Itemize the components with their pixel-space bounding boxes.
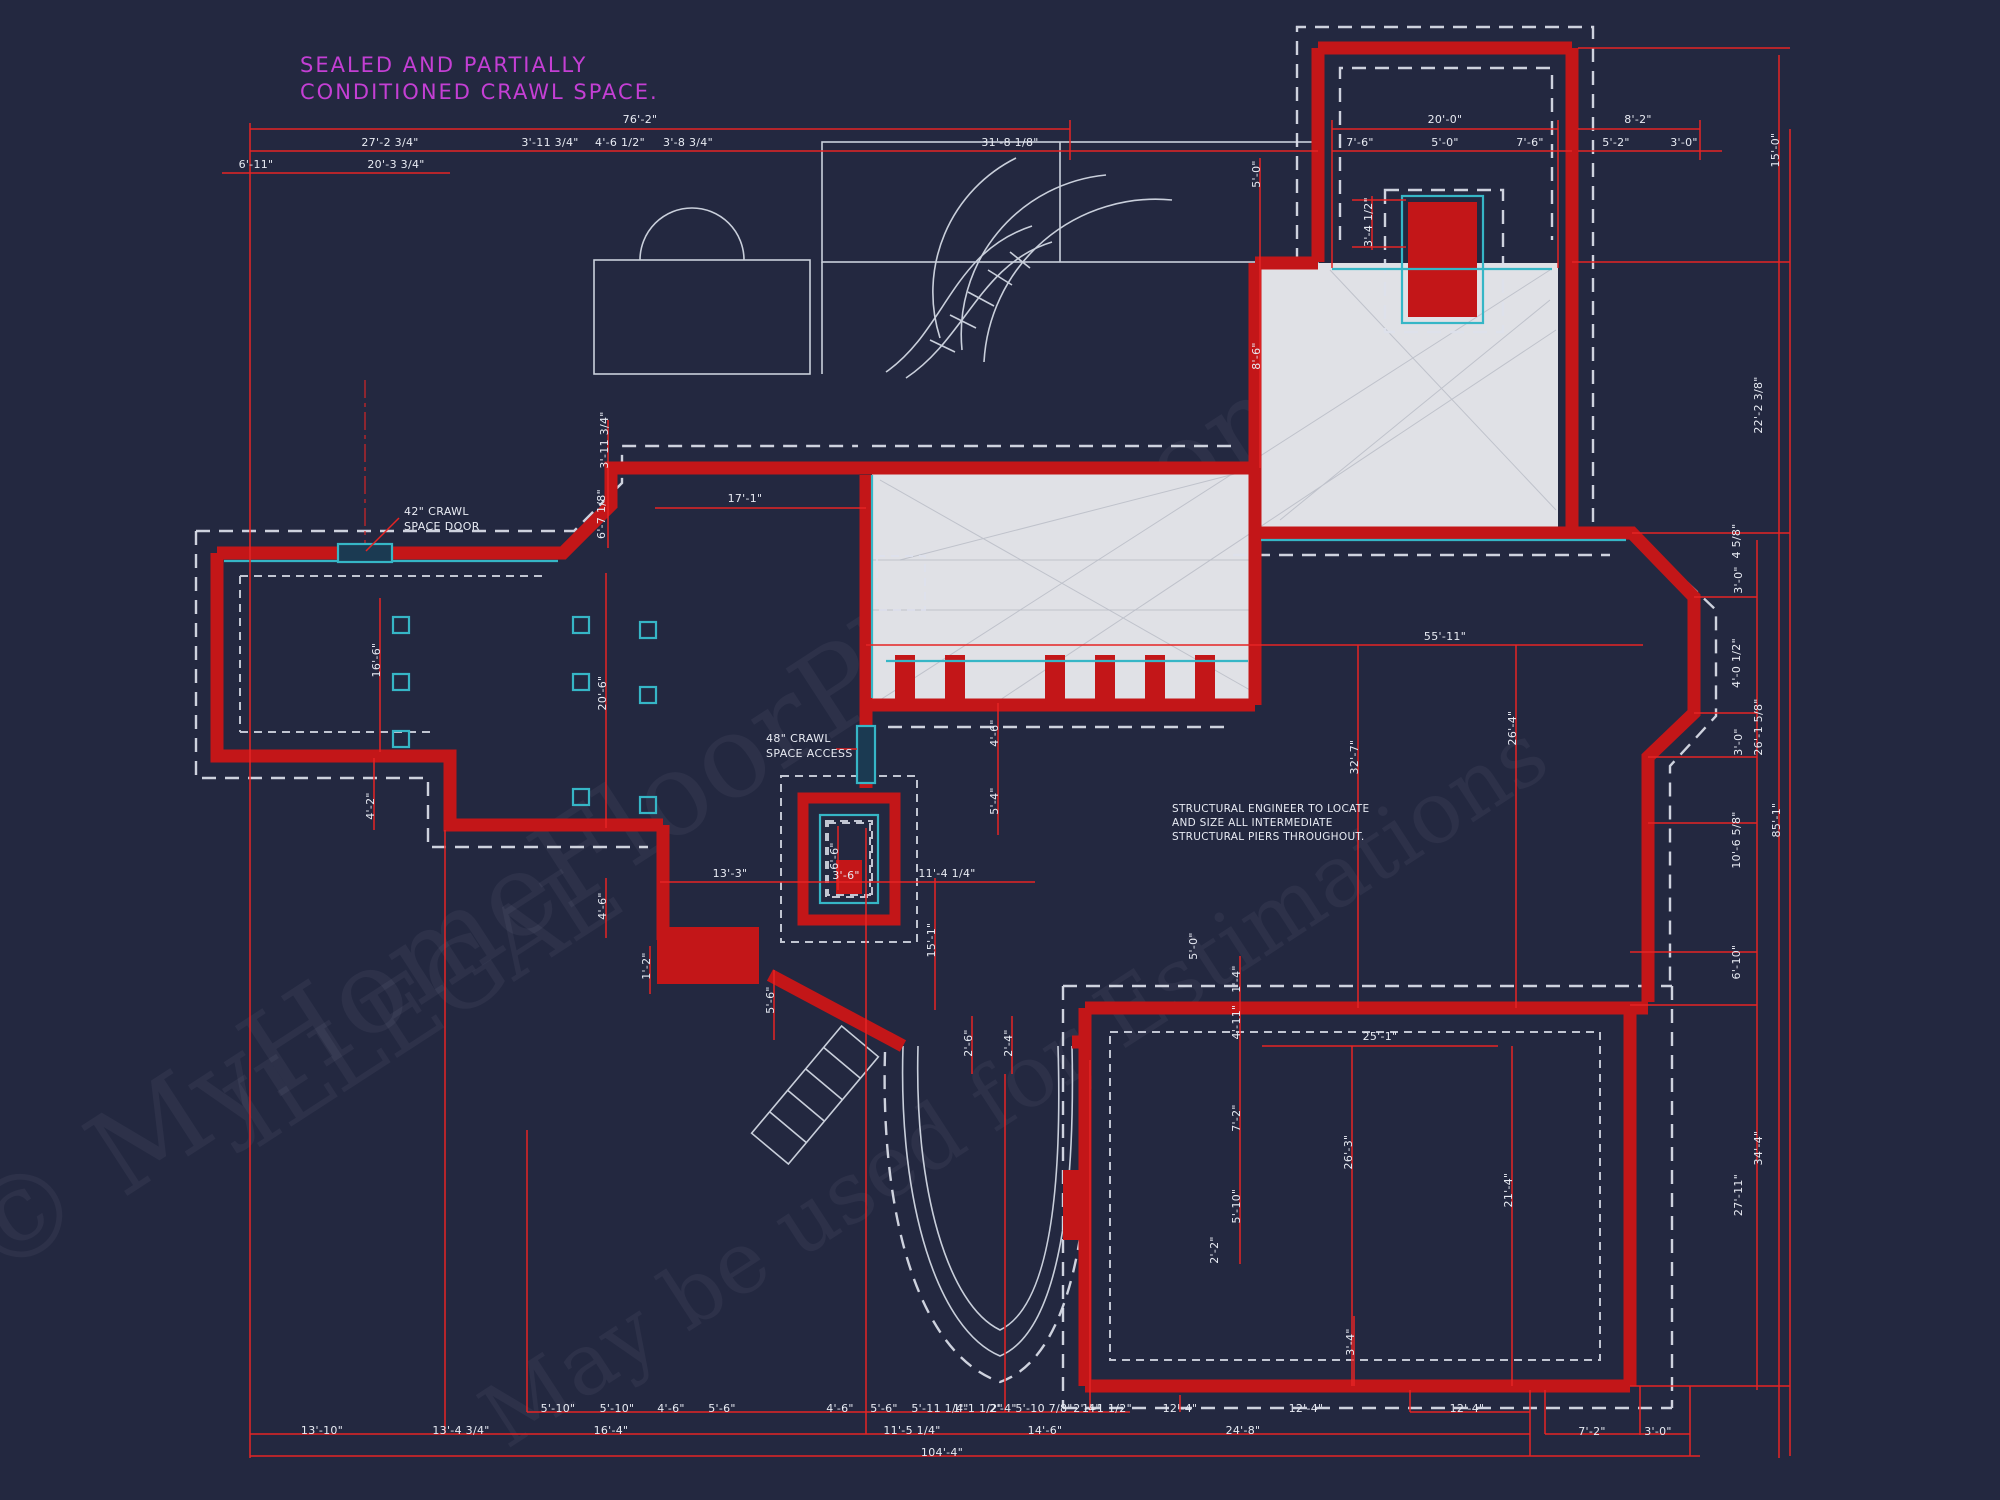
dimension-label: 11'-4 1/4" <box>918 867 975 880</box>
dimension-label: 55'-11" <box>1424 630 1466 643</box>
dimension-label: 26'-3" <box>1342 1135 1355 1170</box>
dimension-label: 22'-2 3/8" <box>1752 376 1765 433</box>
dimension-label: 2'-6" <box>962 1029 975 1057</box>
dimension-label: 4'-0 1/2" <box>1730 638 1743 688</box>
dimension-label: 5'-0" <box>1250 160 1263 188</box>
dimension-label: 4'-6 1/2" <box>595 136 645 149</box>
dimension-label: 12'-4" <box>1450 1402 1485 1415</box>
dimension-label: 3'-0" <box>1670 136 1698 149</box>
dimension-label: 76'-2" <box>623 113 658 126</box>
dimension-label: 17'-1" <box>728 492 763 505</box>
dimension-label: 3'-0" <box>1644 1425 1672 1438</box>
dimension-label: 12'-4" <box>1289 1402 1324 1415</box>
dimension-label: 6'-10" <box>1730 945 1743 980</box>
dimension-label: 15'-0" <box>1769 133 1782 168</box>
dimension-label: 16'-6" <box>370 643 383 678</box>
dimension-label: 21'-4" <box>1502 1173 1515 1208</box>
crawl-door-label: SPACE DOOR <box>404 520 480 533</box>
crawl-access-opening <box>857 726 875 783</box>
dimension-label: 4 5/8" <box>1730 523 1743 558</box>
dimension-label: 26'-4" <box>1506 711 1519 746</box>
dimension-label: 16'-4" <box>594 1424 629 1437</box>
dimension-label: 25'-1" <box>1363 1030 1398 1043</box>
dimension-label: 2'-4" <box>1002 1029 1015 1057</box>
dimension-label: 10'-6 5/8" <box>1730 811 1743 868</box>
fireplace-foundation <box>1408 202 1477 317</box>
dimension-label: 4'-6" <box>596 892 609 920</box>
dimension-label: 13'-4 3/4" <box>432 1424 489 1437</box>
dimension-label: 5'-6" <box>708 1402 736 1415</box>
dimension-label: 85'-1" <box>1770 803 1783 838</box>
dimension-label: 4'-6" <box>988 719 1001 747</box>
dimension-label: 5'-2" <box>1602 136 1630 149</box>
dimension-label: 3'-11 3/4" <box>521 136 578 149</box>
dimension-label: 3'-0" <box>1732 566 1745 594</box>
dimension-label: 8'-2" <box>1624 113 1652 126</box>
dimension-label: 5'-10 7/8" <box>1015 1402 1072 1415</box>
engineer-note: STRUCTURAL PIERS THROUGHOUT. <box>1172 831 1365 843</box>
dimension-label: 8'-6" <box>1250 342 1263 370</box>
dimension-label: 13'-10" <box>301 1424 343 1437</box>
crawl-space-note: SEALED AND PARTIALLY <box>300 53 587 77</box>
dimension-label: 7'-6" <box>1346 136 1374 149</box>
garage-slab <box>1255 263 1558 533</box>
dimension-label: 7'-2" <box>1230 1104 1243 1132</box>
engineer-note: STRUCTURAL ENGINEER TO LOCATE <box>1172 803 1369 815</box>
dimension-label: 3'-6" <box>832 869 860 882</box>
dimension-label: 5'-0" <box>1187 932 1200 960</box>
dimension-label: 13'-3" <box>713 867 748 880</box>
dimension-label: 7'-2" <box>1578 1425 1606 1438</box>
dimension-label: 3'-0" <box>1732 728 1745 756</box>
dimension-label: 31'-8 1/8" <box>981 136 1038 149</box>
dimension-label: 3'-11 3/4" <box>598 411 611 468</box>
dimension-label: 5'-6" <box>764 986 777 1014</box>
dimension-label: 4'-11" <box>1230 1005 1243 1040</box>
dimension-label: 11'-5 1/4" <box>883 1424 940 1437</box>
dimension-label: 27'-11" <box>1732 1174 1745 1216</box>
dimension-label: 20'-6" <box>596 676 609 711</box>
foundation-plan-drawing: © MyHomeFloorPlans.comILLEGALMay be used… <box>0 0 2000 1500</box>
cad-canvas: © MyHomeFloorPlans.comILLEGALMay be used… <box>0 0 2000 1500</box>
dimension-label: 6'-7 1/8" <box>595 489 608 539</box>
dimension-label: 15'-1" <box>925 923 938 958</box>
dimension-label: 24'-8" <box>1226 1424 1261 1437</box>
dimension-label: 5'-10" <box>541 1402 576 1415</box>
crawl-space-note: CONDITIONED CRAWL SPACE. <box>300 80 659 104</box>
dimension-label: 3'-8 3/4" <box>663 136 713 149</box>
dimension-label: 104'-4" <box>921 1446 963 1459</box>
dimension-label: 12'-4" <box>1163 1402 1198 1415</box>
crawl-door-opening <box>338 544 392 562</box>
dimension-label: 2'-2" <box>1208 1236 1221 1264</box>
dimension-label: 7'-6" <box>1516 136 1544 149</box>
stoop-pad <box>657 927 759 984</box>
dimension-label: 5'-10" <box>600 1402 635 1415</box>
dimension-label: 4'-2" <box>364 792 377 820</box>
dimension-label: 20'-3 3/4" <box>367 158 424 171</box>
dimension-label: 3'-4 1/2" <box>1362 197 1375 247</box>
dimension-label: 5'-4" <box>988 787 1001 815</box>
dimension-label: 5'-0" <box>1431 136 1459 149</box>
dimension-label: 4'-6" <box>657 1402 685 1415</box>
dimension-label: 6'-11" <box>239 158 274 171</box>
crawl-access-label: 48" CRAWL <box>766 732 831 745</box>
dimension-label: 5'-6" <box>870 1402 898 1415</box>
engineer-note: AND SIZE ALL INTERMEDIATE <box>1172 817 1333 829</box>
dimension-label: 3'-4" <box>1344 1328 1357 1356</box>
dimension-label: 14'-6" <box>1028 1424 1063 1437</box>
dimension-label: 27'-2 3/4" <box>361 136 418 149</box>
crawl-access-label: SPACE ACCESS <box>766 747 853 760</box>
wall-notch <box>1063 1170 1085 1240</box>
dimension-label: 26'-1 5/8" <box>1752 698 1765 755</box>
dimension-label: 4'-6" <box>826 1402 854 1415</box>
dimension-label: 6'-6" <box>828 842 841 870</box>
dimension-label: 1'-1 1/2" <box>1082 1402 1132 1415</box>
dimension-label: 1'-2" <box>640 952 653 980</box>
crawl-door-label: 42" CRAWL <box>404 505 469 518</box>
dimension-label: 5'-10" <box>1230 1189 1243 1224</box>
dimension-label: 34'-4" <box>1752 1131 1765 1166</box>
dimension-label: 1'-4" <box>1230 965 1243 993</box>
dimension-label: 2'-4" <box>989 1402 1017 1415</box>
dimension-label: 32'-7" <box>1348 740 1361 775</box>
dimension-label: 20'-0" <box>1428 113 1463 126</box>
